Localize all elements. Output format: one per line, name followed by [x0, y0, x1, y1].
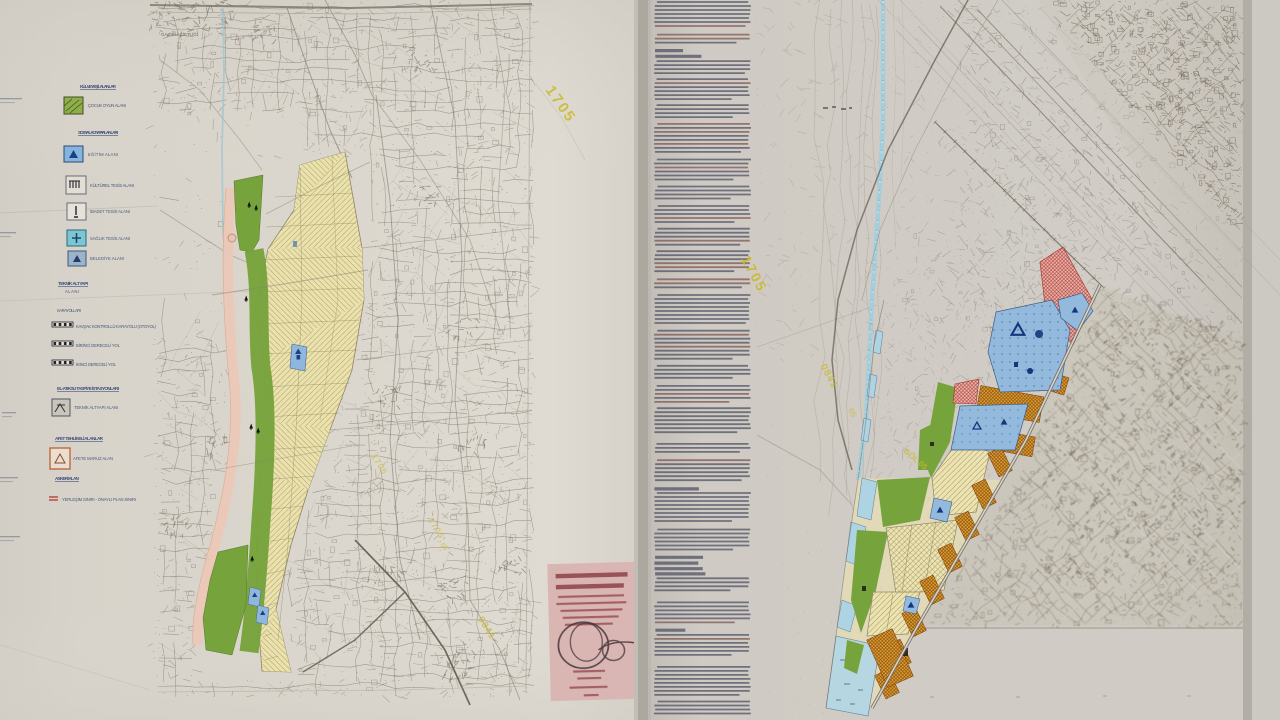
svg-text:BELEDİYE ALANI: BELEDİYE ALANI	[90, 256, 124, 261]
svg-text:KÜL VE YEŞİL ALANLAR: KÜL VE YEŞİL ALANLAR	[80, 83, 117, 89]
svg-text:EL-ATIKSU TASFİYE İSTASYONLARI: EL-ATIKSU TASFİYE İSTASYONLARI	[57, 385, 119, 391]
svg-text:İKİNCİ DERECELİ YOL: İKİNCİ DERECELİ YOL	[76, 362, 117, 367]
svg-text:KÜLTÜREL TESİS ALANI: KÜLTÜREL TESİS ALANI	[90, 183, 134, 188]
svg-text:SOSYAL ALTYAPI ALANLARI: SOSYAL ALTYAPI ALANLARI	[78, 130, 118, 135]
svg-text:GAZİELİ ÇİFTLİĞİ: GAZİELİ ÇİFTLİĞİ	[161, 31, 198, 37]
svg-text:ÇOCUK OYUN ALANI: ÇOCUK OYUN ALANI	[88, 103, 126, 108]
svg-text:AFET TEHLİKELİ ALANLAR: AFET TEHLİKELİ ALANLAR	[55, 435, 104, 441]
svg-text:TEKNİK ALTYAPI: TEKNİK ALTYAPI	[58, 280, 88, 286]
svg-text:KARAYOLLARI: KARAYOLLARI	[57, 308, 81, 313]
svg-text:YERLEŞİM SINIRI - ONAYLI PLAN: YERLEŞİM SINIRI - ONAYLI PLAN SINIRI	[62, 497, 136, 502]
svg-text:SAĞLIK TESİS ALANI: SAĞLIK TESİS ALANI	[90, 236, 130, 241]
svg-text:ASKERİ ALAN: ASKERİ ALAN	[55, 475, 80, 481]
svg-text:İBADET TESİS ALANI: İBADET TESİS ALANI	[90, 209, 130, 214]
svg-text:BİRİNCİ DERECELİ YOL: BİRİNCİ DERECELİ YOL	[76, 343, 121, 348]
svg-text:KAVŞAK KONTROLLÜ KARAYOLU (OTO: KAVŞAK KONTROLLÜ KARAYOLU (OTOYOL)	[76, 324, 157, 329]
svg-text:ALANI: ALANI	[65, 289, 79, 294]
svg-text:AFETE MARUZ ALAN: AFETE MARUZ ALAN	[73, 456, 113, 461]
svg-text:EĞİTİM ALANI: EĞİTİM ALANI	[88, 152, 118, 157]
svg-text:TEKNİK ALTYAPI ALANI: TEKNİK ALTYAPI ALANI	[74, 405, 118, 410]
